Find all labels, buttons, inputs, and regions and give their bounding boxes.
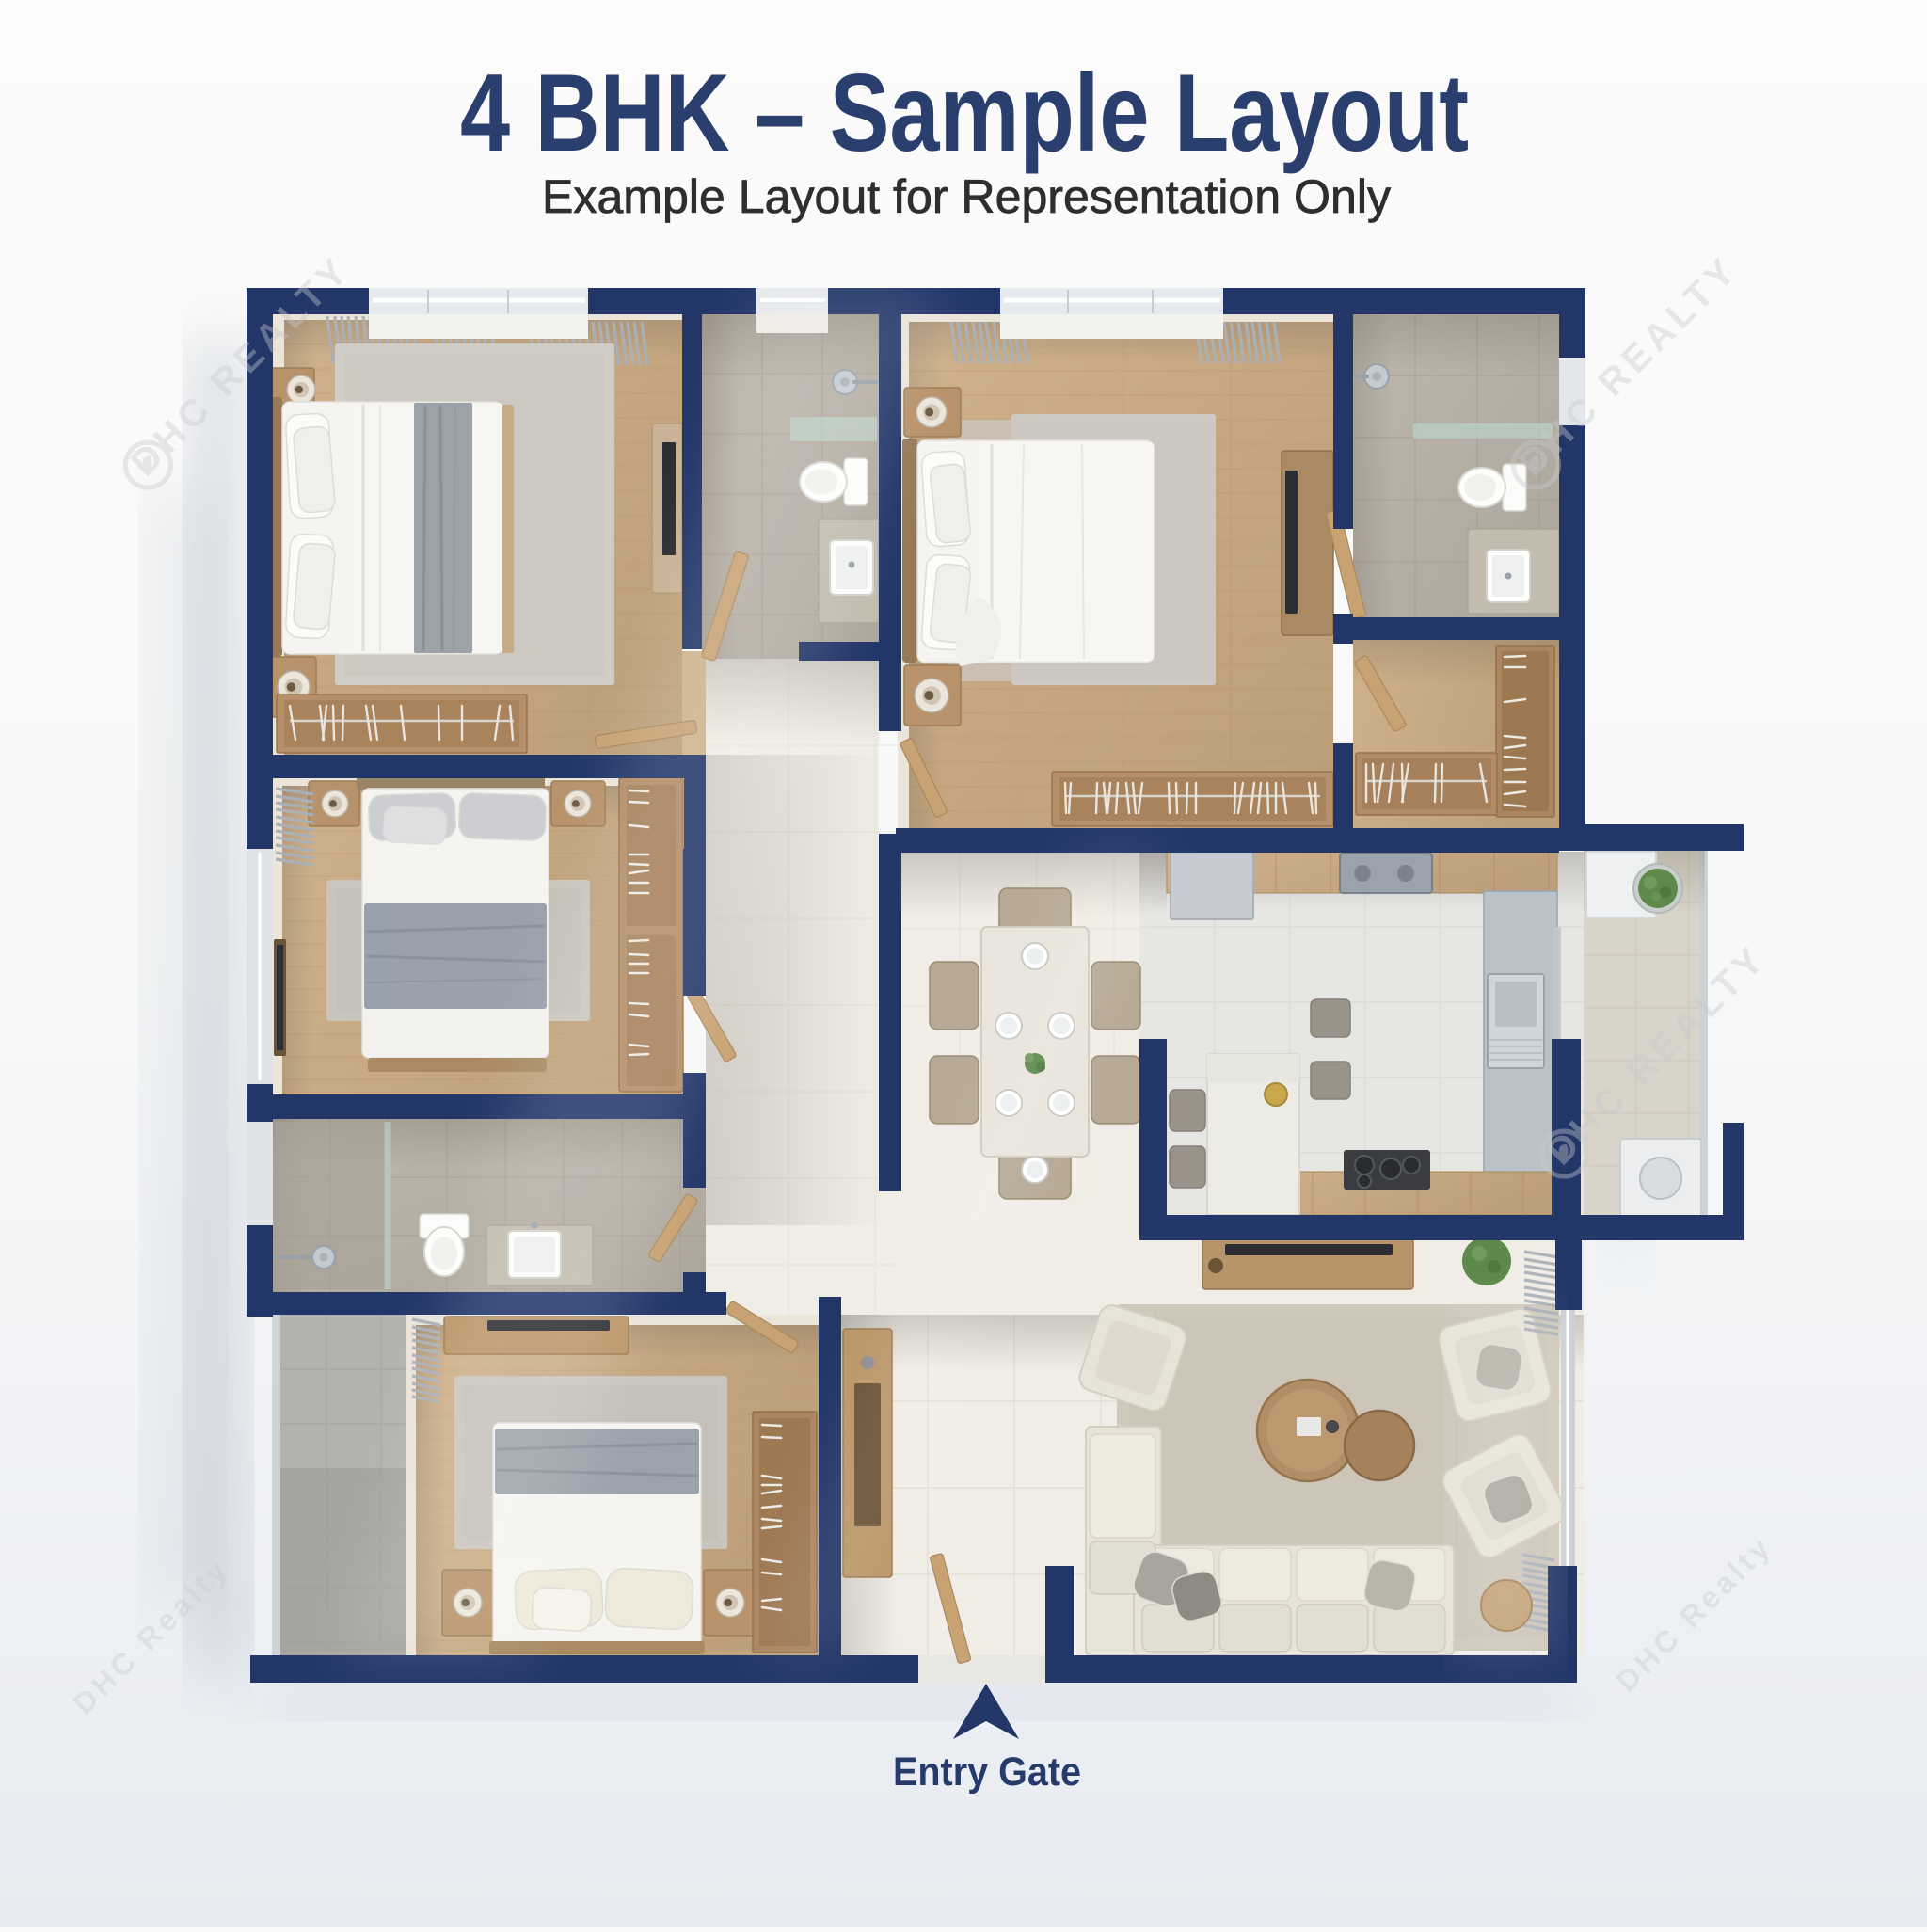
svg-text:Entry Gate: Entry Gate <box>893 1749 1081 1795</box>
svg-text:Example Layout for Representat: Example Layout for Representation Only <box>542 170 1391 223</box>
svg-text:4 BHK – Sample Layout: 4 BHK – Sample Layout <box>460 51 1469 174</box>
